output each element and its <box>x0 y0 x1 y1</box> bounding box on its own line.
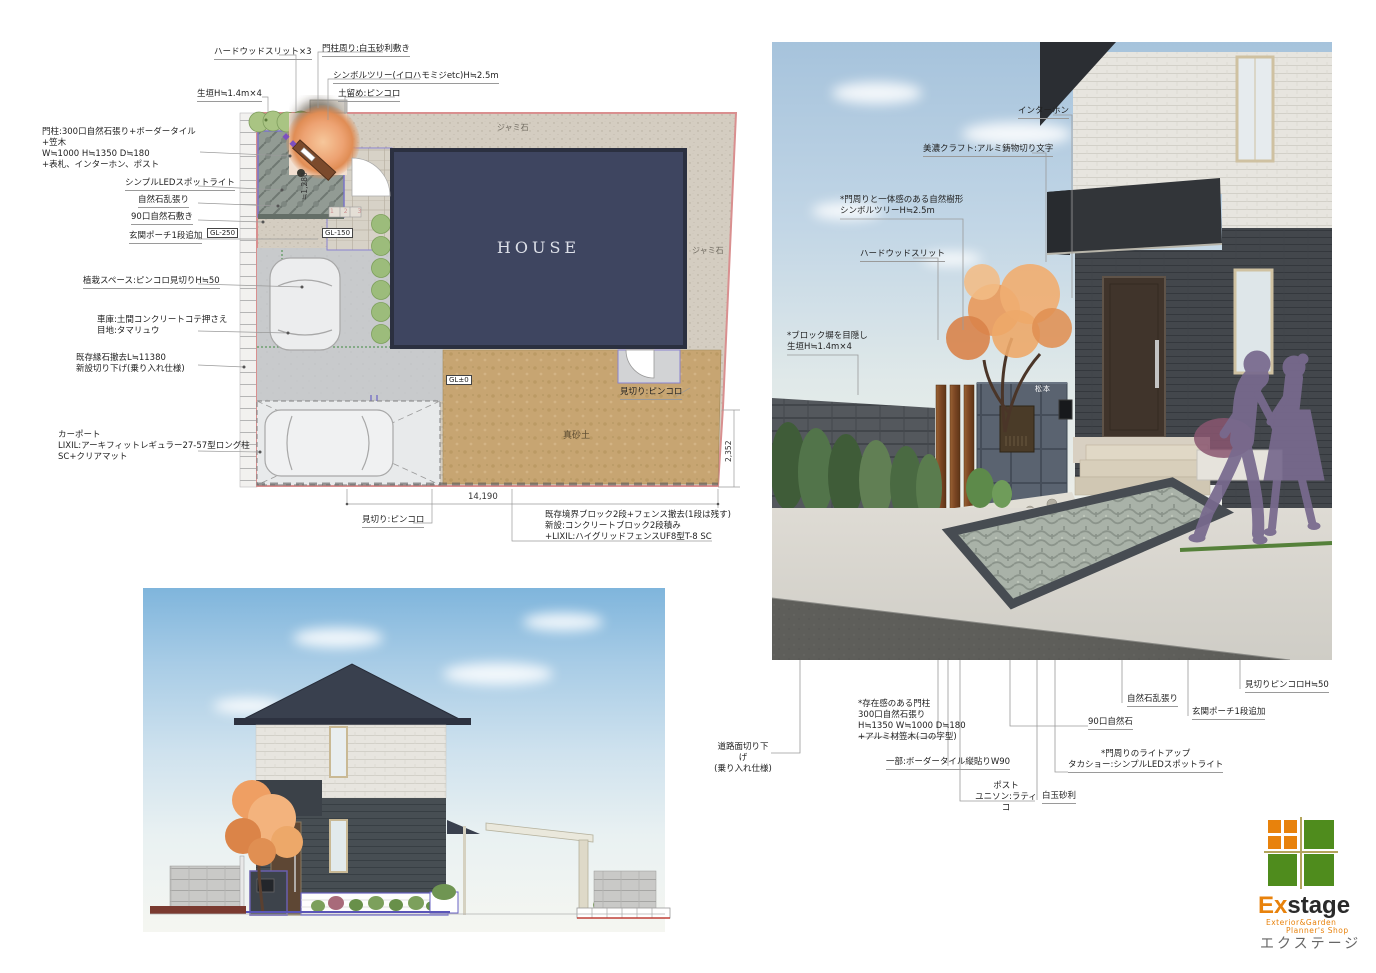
logo-wordmark: Exstage <box>1258 892 1350 920</box>
plan-masago-yard <box>443 350 721 484</box>
plan-label-garage: 車庫:土間コンクリートコテ押さえ 目地:タマリュウ <box>97 315 227 337</box>
render-white-brick-wall-lower <box>1222 180 1332 230</box>
intercom-icon <box>1059 400 1072 419</box>
plan-leader-dots <box>243 155 720 506</box>
plan-carport <box>257 401 440 485</box>
plan-entry-door-swing <box>352 158 390 196</box>
plan-tree-shadow <box>294 100 342 148</box>
plan-label-hardwood-slit: ハードウッドスリット×3 <box>214 47 312 60</box>
logo-katakana: エクステージ <box>1260 933 1361 953</box>
render-plant <box>992 480 1012 508</box>
render-label-porch-step: 玄関ポーチ1段追加 <box>1192 707 1265 720</box>
render-label-intercom: インターホン <box>1018 106 1069 119</box>
plan-label-planting-space: 植栽スペース:ピンコロ見切りH≒50 <box>83 276 220 289</box>
logo-stage: stage <box>1287 892 1350 919</box>
company-logo: Exstage Exterior&Garden Planner's Shop エ… <box>1256 820 1356 960</box>
render-label-hardwood-slit: ハードウッドスリット <box>860 249 945 262</box>
plan-entry-dim: ≒1,280 <box>300 172 309 200</box>
plan-car-carport <box>265 410 393 476</box>
render-label-minocraft: 美濃クラフト:アルミ鋳物切り文字 <box>923 144 1053 157</box>
logo-square-icon <box>1284 820 1297 833</box>
render-label-stone-paving: 自然石乱張り <box>1127 694 1178 707</box>
render-label-lightup: *門周りのライトアップ タカショー:シンプルLEDスポットライト <box>1068 749 1223 773</box>
render-label-symbol-tree: *門周りと一体感のある自然樹形 シンボルツリーH≒2.5m <box>840 195 963 217</box>
plan-gl-250: GL-250 <box>207 228 238 238</box>
plan-house-label: HOUSE <box>392 238 685 257</box>
plan-label-gate-gravel: 門柱周り:白玉砂利敷き <box>322 44 410 57</box>
logo-square-icon <box>1304 820 1334 849</box>
plan-gate-gravel <box>289 113 347 175</box>
render-label-90-stone: 90口自然石 <box>1088 717 1133 730</box>
plan-label-hedge: 生垣H≒1.4m×4 <box>197 89 262 102</box>
render-canopy-side <box>1047 190 1070 255</box>
plan-label-stone-paving: 自然石乱張り <box>138 195 189 208</box>
render-white-brick-wall <box>1073 52 1332 194</box>
logo-ex: Ex <box>1258 892 1287 919</box>
plan-label-led-spotlight: シンプルLEDスポットライト <box>125 178 235 191</box>
plan-rear-porch <box>618 350 680 383</box>
plan-light-icon <box>289 140 296 147</box>
render-step <box>1086 445 1208 460</box>
render-label-road-cut: 道路面切り下げ (乗り入れ仕様) <box>714 742 772 775</box>
plan-label-porch-step: 玄関ポーチ1段追加 <box>129 231 202 244</box>
exterior-plan-presentation: ハードウッドスリット×3 門柱周り:白玉砂利敷き シンボルツリー(イロハモミジe… <box>0 0 1376 973</box>
plan-width-dim: 14,190 <box>468 492 498 502</box>
plan-pinkoro-divider <box>371 395 377 484</box>
render-nameplate: 松本 <box>1035 384 1051 394</box>
plan-driveway-front <box>257 348 443 401</box>
render-label-mikiri: 見切りピンコロH≒50 <box>1245 680 1329 693</box>
plan-rear-door-swing <box>626 350 654 378</box>
plan-gravel-label-right: ジャミ石 <box>692 245 724 256</box>
logo-square-icon <box>1304 854 1334 886</box>
logo-square-icon <box>1268 836 1281 849</box>
render-plant <box>966 468 994 508</box>
plan-label-mikiri-left: 見切り:ピンコロ <box>362 515 424 528</box>
cloud <box>293 628 383 648</box>
plan-label-carport: カーポート LIXIL:アーキフィットレギュラー27-57型ロング柱 SC+クリ… <box>58 430 250 463</box>
plan-driveway <box>257 248 392 348</box>
site-plan <box>240 100 736 487</box>
render-label-hedge-screen: *ブロック塀を目隠し 生垣H≒1.4m×4 <box>787 331 868 353</box>
plan-label-gate-pillar: 門柱:300口自然石張り+ボーダータイル+笠木 W≒1000 H≒1350 D≒… <box>42 127 200 171</box>
plan-masago-label: 真砂土 <box>563 428 590 441</box>
cloud <box>523 613 603 631</box>
logo-square-icon <box>1268 820 1281 833</box>
plan-gl-0: GL±0 <box>446 375 472 385</box>
plan-light-icon <box>282 133 289 140</box>
logo-square-icon <box>1268 854 1297 886</box>
plan-side-bushes <box>372 215 391 344</box>
logo-cross-line <box>1300 817 1302 889</box>
logo-square-icon <box>1284 836 1297 849</box>
plan-site-boundary <box>257 113 736 486</box>
plan-height-dim: 2,352 <box>724 441 733 462</box>
plan-hedge <box>249 111 311 132</box>
render-label-white-gravel: 白玉砂利 <box>1042 791 1076 804</box>
plan-label-curb-removal: 既存縁石撤去L≒11380 新設切り下げ(乗り入れ仕様) <box>76 353 185 375</box>
render-label-post: ポスト ユニソン:ラティコ <box>975 781 1037 814</box>
render-label-border-tile: 一部:ボーダータイル縦貼りW90 <box>886 757 1010 770</box>
cloud <box>443 663 553 685</box>
plan-car-driveway <box>270 258 340 350</box>
plan-label-retaining: 土留め:ピンコロ <box>338 89 400 102</box>
render-door-handle <box>1155 340 1159 388</box>
plan-symbol-tree <box>286 105 360 179</box>
plan-label-mikiri-right: 見切り:ピンコロ <box>620 387 682 400</box>
plan-gravel-label-top: ジャミ石 <box>497 122 529 133</box>
plan-fence-note: 既存境界ブロック2段+フェンス撤去(1段は残す) 新設:コンクリートブロック2段… <box>545 510 731 543</box>
render-step <box>1080 460 1210 477</box>
plan-step-numbers: 1 2 3 <box>330 208 365 215</box>
plan-leader-lines <box>198 52 740 541</box>
plan-label-90-stone: 90口自然石敷き <box>131 212 193 225</box>
plan-gl-150: GL-150 <box>322 228 353 238</box>
elevation-drawing <box>143 588 665 932</box>
render-label-gate-pillar: *存在感のある門柱 300口自然石張り H≒1350 W≒1000 D≒180 … <box>858 699 966 743</box>
cloud <box>213 698 283 714</box>
plan-label-symbol-tree: シンボルツリー(イロハモミジetc)H≒2.5m <box>333 71 499 84</box>
